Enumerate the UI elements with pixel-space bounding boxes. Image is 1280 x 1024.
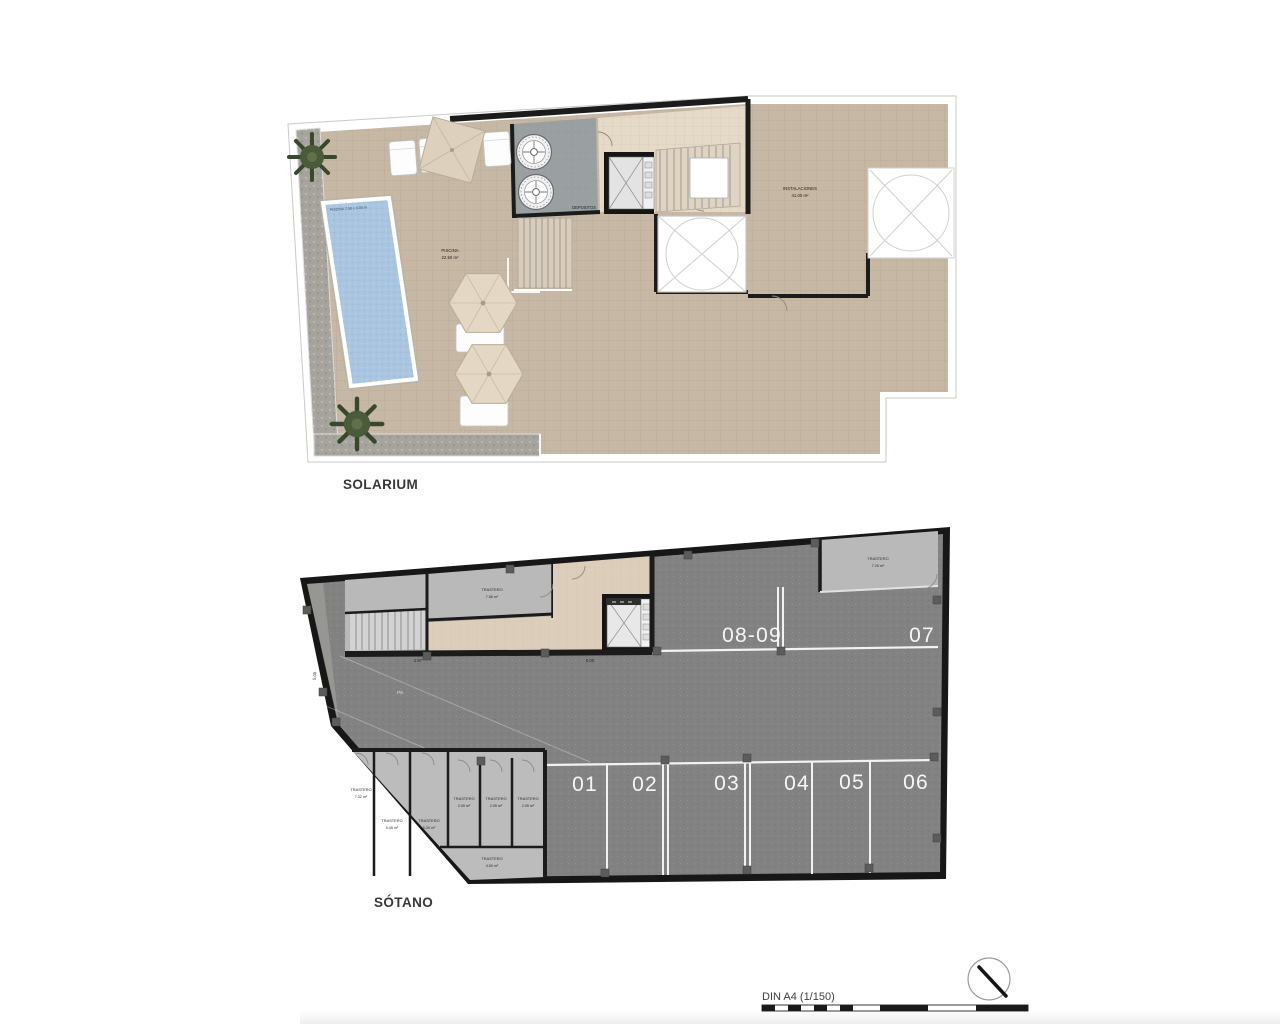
palm-tree-icon bbox=[289, 134, 335, 180]
trastero-area: 4.50 m² bbox=[486, 864, 499, 868]
sun-lounger bbox=[483, 131, 511, 167]
parking-label: 02 bbox=[632, 773, 658, 796]
floor-plans-canvas: PISCINA 7.50 x 3.00 m PISCINA 22.50 m² bbox=[0, 0, 1280, 1024]
stairs-lower bbox=[514, 218, 572, 290]
parking-label: 01 bbox=[572, 773, 598, 796]
lightwell bbox=[658, 216, 746, 292]
deposit-room: DEPOSITOS bbox=[512, 118, 600, 218]
stairs-upper bbox=[656, 143, 740, 212]
solarium-plan: PISCINA 7.50 x 3.00 m PISCINA 22.50 m² bbox=[288, 96, 956, 492]
dim-label: 0.00 bbox=[586, 658, 595, 663]
parking-label: 05 bbox=[839, 771, 865, 794]
water-tank-icon bbox=[517, 135, 552, 170]
lightwell bbox=[868, 168, 954, 258]
palm-tree-icon bbox=[332, 399, 383, 450]
installations-area-label: 41.00 m² bbox=[792, 193, 810, 198]
trastero-area: 2.95 m² bbox=[490, 804, 503, 808]
elevator-icon bbox=[602, 594, 652, 652]
pool-name-label: PISCINA bbox=[441, 248, 458, 253]
trastero-area: 5.30 m² bbox=[423, 826, 436, 830]
trastero-area: 7.25 m² bbox=[872, 564, 885, 568]
trastero-label: TRASTERO bbox=[867, 556, 888, 561]
trastero-area: 5.45 m² bbox=[386, 826, 399, 830]
sheet-edge-shadow bbox=[300, 1010, 1280, 1024]
parking-label: 08-09 bbox=[722, 624, 782, 647]
pool-area-label: 22.50 m² bbox=[442, 255, 460, 260]
trastero-label: TRASTERO bbox=[381, 818, 402, 823]
trastero-area: 7.32 m² bbox=[355, 795, 368, 799]
trastero-area: 2.95 m² bbox=[522, 804, 535, 808]
trastero-label: TRASTERO bbox=[453, 796, 474, 801]
trastero-area: 7.56 m² bbox=[486, 595, 499, 599]
level-label: 5.00 bbox=[312, 671, 318, 680]
trastero-label: TRASTERO bbox=[481, 856, 502, 861]
parking-label: 07 bbox=[909, 624, 935, 647]
trastero-label: TRASTERO bbox=[485, 796, 506, 801]
trastero-room: TRASTERO 7.25 m² bbox=[820, 531, 938, 592]
parking-label: 03 bbox=[714, 772, 740, 795]
deposits-label: DEPOSITOS bbox=[572, 205, 596, 210]
elevator-icon bbox=[604, 152, 654, 214]
parking-label: 06 bbox=[903, 771, 929, 794]
north-arrow-icon bbox=[968, 958, 1010, 1000]
parking-label: 04 bbox=[784, 772, 810, 795]
scale-label: DIN A4 (1/150) bbox=[762, 991, 835, 1003]
ramp-label: P6 bbox=[397, 690, 403, 696]
sotano-title: SÓTANO bbox=[374, 895, 433, 910]
sotano-plan: TRASTERO 7.56 m² bbox=[300, 527, 950, 910]
water-tank-icon bbox=[519, 175, 554, 210]
trastero-label: TRASTERO bbox=[350, 787, 371, 792]
sheet-footer: DIN A4 (1/150) bbox=[300, 958, 1280, 1024]
dim-label: 2.97 bbox=[414, 658, 423, 663]
solarium-title: SOLARIUM bbox=[343, 477, 418, 492]
trastero-label: TRASTERO bbox=[481, 587, 502, 592]
trastero-label: TRASTERO bbox=[517, 796, 538, 801]
sun-lounger bbox=[389, 140, 417, 176]
plan-sheet: { "colors": { "terrace": "#c6b8a5", "dec… bbox=[0, 0, 1280, 1024]
trastero-label: TRASTERO bbox=[418, 818, 439, 823]
installations-name-label: INSTALACIONES bbox=[783, 186, 817, 191]
trastero-area: 3.95 m² bbox=[458, 804, 471, 808]
